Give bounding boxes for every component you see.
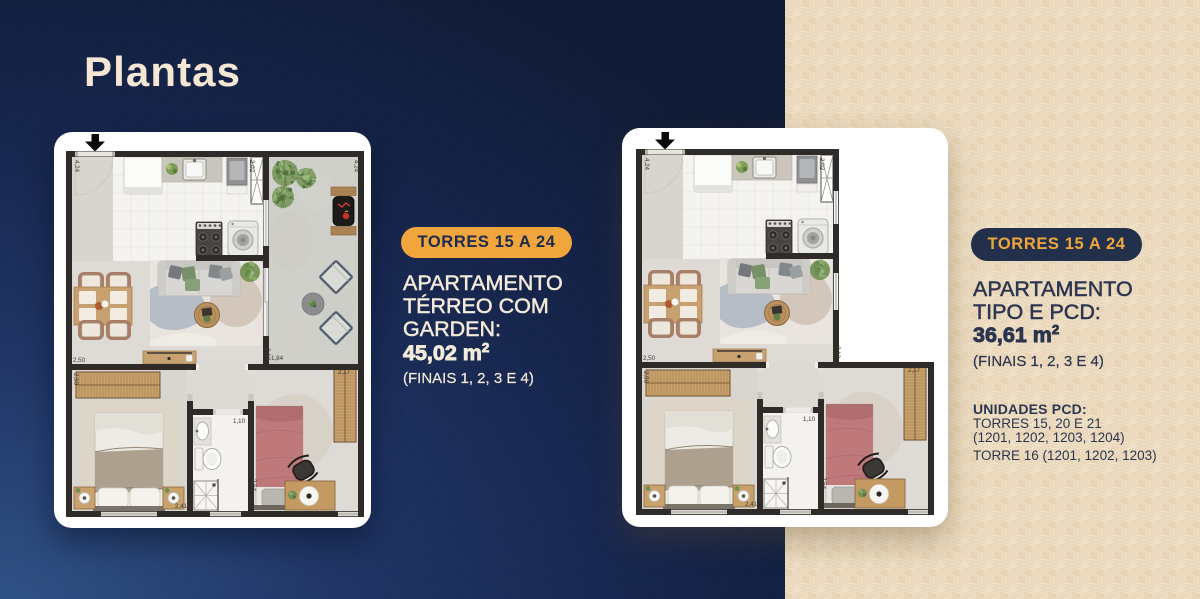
svg-text:2,02: 2,02 (248, 160, 255, 173)
svg-text:2,50: 2,50 (73, 357, 86, 364)
svg-text:2,41: 2,41 (175, 503, 188, 510)
svg-text:2,02: 2,02 (818, 158, 825, 171)
svg-text:4,24: 4,24 (643, 158, 650, 171)
svg-text:1,10: 1,10 (803, 416, 816, 423)
svg-text:4,24: 4,24 (353, 160, 360, 173)
svg-text:2,41: 2,41 (745, 501, 758, 508)
svg-text:2,54: 2,54 (820, 477, 827, 490)
svg-text:4,24: 4,24 (73, 160, 80, 173)
svg-text:2,90: 2,90 (642, 371, 649, 384)
svg-text:1,10: 1,10 (233, 418, 246, 425)
svg-text:2,50: 2,50 (643, 355, 656, 362)
svg-text:2,12: 2,12 (834, 346, 841, 359)
svg-text:2,54: 2,54 (250, 479, 257, 492)
svg-text:2,90: 2,90 (72, 373, 79, 386)
svg-text:2,17: 2,17 (338, 369, 351, 376)
svg-text:1,84: 1,84 (271, 355, 284, 362)
svg-text:2,17: 2,17 (908, 367, 921, 374)
svg-text:2,12: 2,12 (264, 348, 271, 361)
